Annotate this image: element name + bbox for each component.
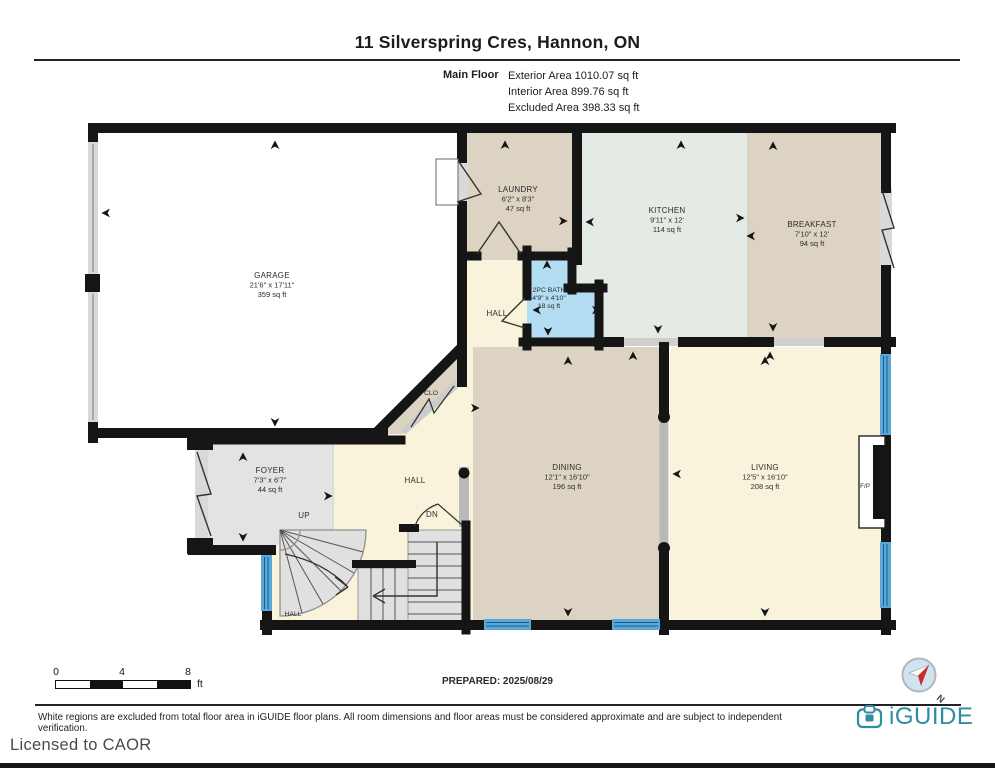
svg-text:9'11" x 12': 9'11" x 12' bbox=[650, 216, 684, 225]
scale-tick-8: 8 bbox=[185, 666, 191, 678]
footer-divider bbox=[35, 704, 961, 706]
svg-text:FOYER: FOYER bbox=[256, 466, 285, 475]
page-title: 11 Silverspring Cres, Hannon, ON bbox=[0, 32, 995, 53]
window-stair-hall bbox=[261, 555, 272, 611]
compass-icon: N bbox=[895, 653, 947, 707]
closet-label: CLO bbox=[424, 390, 438, 397]
svg-text:BREAKFAST: BREAKFAST bbox=[787, 220, 836, 229]
down-label: DN bbox=[426, 510, 438, 519]
bottom-edge-strip bbox=[0, 763, 995, 768]
logo-bump bbox=[865, 706, 875, 713]
post-foyer-bottom bbox=[187, 538, 213, 554]
disclaimer-text: White regions are excluded from total fl… bbox=[38, 712, 828, 734]
window-living-upper bbox=[880, 354, 891, 435]
window-dining-2 bbox=[612, 619, 660, 630]
svg-text:114 sq ft: 114 sq ft bbox=[653, 225, 682, 234]
scale-segment bbox=[56, 681, 90, 688]
svg-text:359 sq ft: 359 sq ft bbox=[258, 290, 288, 299]
excluded-area: Excluded Area 398.33 sq ft bbox=[508, 101, 639, 117]
hall-upper-floor bbox=[457, 260, 527, 347]
post-garage-mid bbox=[85, 274, 100, 292]
svg-text:47 sq ft: 47 sq ft bbox=[506, 204, 532, 213]
floor-plan-drawing: GARAGE 21'6" x 17'11" 359 sq ft LAUNDRY … bbox=[85, 118, 900, 640]
scale-segment bbox=[157, 681, 191, 688]
interior-area: Interior Area 899.76 sq ft bbox=[508, 85, 639, 101]
window-dining-1 bbox=[484, 619, 531, 630]
svg-text:6'2" x 8'3": 6'2" x 8'3" bbox=[502, 195, 535, 204]
iguide-logo: iGUIDE bbox=[856, 703, 973, 731]
svg-text:208 sq ft: 208 sq ft bbox=[751, 482, 781, 491]
svg-text:DINING: DINING bbox=[552, 463, 582, 472]
hall-upper-label: HALL bbox=[486, 309, 507, 318]
svg-text:KITCHEN: KITCHEN bbox=[649, 206, 686, 215]
room-floors bbox=[98, 133, 883, 630]
logo-lens bbox=[866, 714, 874, 721]
svg-text:4'9" x 4'10": 4'9" x 4'10" bbox=[532, 295, 566, 302]
half-wall-dining-living bbox=[660, 421, 669, 547]
garage-entry-door-panel bbox=[436, 159, 458, 205]
post-foyer-top bbox=[187, 434, 213, 450]
svg-text:2PC BATH: 2PC BATH bbox=[533, 287, 566, 294]
svg-text:44 sq ft: 44 sq ft bbox=[258, 485, 284, 494]
svg-text:GARAGE: GARAGE bbox=[254, 271, 290, 280]
hall-lower-label: HALL bbox=[284, 611, 301, 618]
scale-tick-0: 0 bbox=[53, 666, 59, 678]
scale-bar: 0 4 8 ft bbox=[55, 666, 191, 692]
svg-text:7'3" x 6'7": 7'3" x 6'7" bbox=[254, 476, 287, 485]
iguide-logo-icon bbox=[856, 704, 883, 731]
hall-center-label: HALL bbox=[404, 476, 425, 485]
svg-text:196 sq ft: 196 sq ft bbox=[553, 482, 583, 491]
svg-text:LIVING: LIVING bbox=[751, 463, 779, 472]
fireplace bbox=[859, 436, 887, 528]
floor-label: Main Floor bbox=[443, 69, 499, 81]
scale-unit-label: ft bbox=[197, 678, 203, 690]
column-hall bbox=[459, 468, 470, 479]
title-divider bbox=[34, 59, 960, 61]
exterior-area: Exterior Area 1010.07 sq ft bbox=[508, 69, 639, 85]
floor-plan-page: 11 Silverspring Cres, Hannon, ON Main Fl… bbox=[0, 0, 995, 768]
svg-text:12'5" x 16'10": 12'5" x 16'10" bbox=[742, 473, 788, 482]
foyer-label: FOYER 7'3" x 6'7" 44 sq ft bbox=[254, 466, 287, 494]
svg-text:94 sq ft: 94 sq ft bbox=[800, 239, 826, 248]
iguide-logo-text: iGUIDE bbox=[889, 703, 973, 731]
license-text: Licensed to CAOR bbox=[10, 736, 151, 755]
svg-text:21'6" x 17'11": 21'6" x 17'11" bbox=[250, 281, 295, 290]
svg-text:LAUNDRY: LAUNDRY bbox=[498, 185, 538, 194]
scale-bar-segments bbox=[55, 680, 191, 689]
area-summary: Exterior Area 1010.07 sq ft Interior Are… bbox=[508, 69, 639, 116]
scale-tick-4: 4 bbox=[119, 666, 125, 678]
prepared-date: PREPARED: 2025/08/29 bbox=[442, 676, 553, 687]
kitchen-label: KITCHEN 9'11" x 12' 114 sq ft bbox=[649, 206, 686, 234]
svg-text:18 sq ft: 18 sq ft bbox=[538, 303, 560, 310]
svg-text:12'1" x 16'10": 12'1" x 16'10" bbox=[544, 473, 590, 482]
scale-segment bbox=[123, 681, 157, 688]
fireplace-firebox bbox=[873, 445, 887, 519]
scale-segment bbox=[90, 681, 124, 688]
svg-text:7'10" x 12': 7'10" x 12' bbox=[795, 230, 830, 239]
fireplace-label: F/P bbox=[860, 483, 870, 490]
window-living-lower bbox=[880, 542, 891, 608]
up-label: UP bbox=[298, 511, 310, 520]
